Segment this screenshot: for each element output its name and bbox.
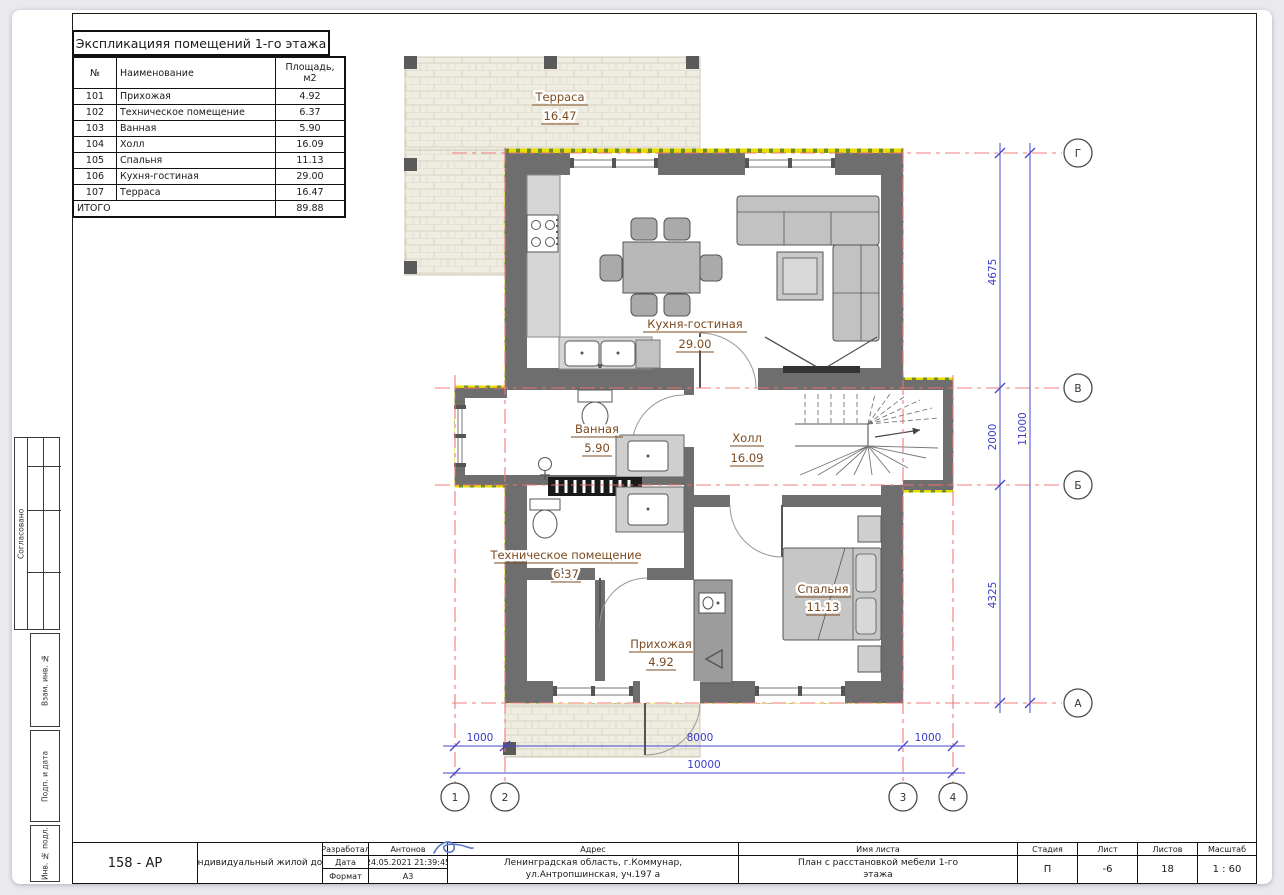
coffee-table: [777, 252, 823, 300]
developed-label: Разработал: [322, 842, 369, 856]
stamp-podp-box: Подп. и дата: [30, 730, 60, 822]
dim-label: 11000: [1017, 412, 1029, 445]
project-name: Индивидуальный жилой дом: [197, 842, 323, 884]
address-value: Ленинградская область, г.Коммунар, ул.Ан…: [447, 855, 739, 884]
sheet-value: -6: [1077, 855, 1138, 884]
total-label: ИТОГО: [73, 201, 276, 218]
room-area: 29.00: [679, 337, 712, 351]
stamp-agreed-box: Согласовано: [14, 437, 60, 630]
dim-label: 4325: [987, 582, 999, 609]
table-row: 103 Ванная 5.90: [73, 121, 345, 137]
room-label: Терраса: [534, 90, 584, 104]
room-area: 4.92: [648, 655, 674, 669]
sheets-label: Листов: [1137, 842, 1198, 856]
room-label: Прихожая: [630, 637, 692, 651]
project-code: 158 - АР: [72, 842, 198, 884]
format-label: Формат: [322, 868, 369, 884]
axis-label: В: [1074, 383, 1081, 395]
schedule-title: Экспликацияя помещений 1-го этажа: [72, 30, 330, 56]
stairs: [795, 394, 939, 475]
dim-label: 8000: [687, 732, 714, 744]
room-area: 6.37: [553, 567, 579, 581]
sheetname-value: План с расстановкой мебели 1-го этажа: [738, 855, 1018, 884]
table-row: 101 Прихожая 4.92: [73, 89, 345, 105]
sheetname-label: Имя листа: [738, 842, 1018, 856]
axis-label: 4: [950, 792, 957, 804]
stamp-agreed-label: Согласовано: [15, 438, 27, 629]
stove-icon: [527, 215, 558, 252]
room-label: Техническое помещение: [489, 548, 641, 562]
axis-label: 1: [452, 792, 459, 804]
dim-label: 1000: [467, 732, 494, 744]
room-area: 5.90: [584, 441, 610, 455]
table-row: 105 Спальня 11.13: [73, 153, 345, 169]
axis-label: 3: [900, 792, 907, 804]
date-label: Дата: [322, 855, 369, 869]
wardrobe: [694, 580, 732, 683]
dim-label: 1000: [915, 732, 942, 744]
scale-value: 1 : 60: [1197, 855, 1257, 884]
room-label: Ванная: [575, 422, 619, 436]
total-area: 89.88: [276, 201, 346, 218]
room-label: Холл: [732, 431, 762, 445]
dim-label: 10000: [687, 759, 720, 771]
address-label: Адрес: [447, 842, 739, 856]
axis-label: 2: [502, 792, 509, 804]
table-row: 102 Техническое помещение 6.37: [73, 105, 345, 121]
stage-label: Стадия: [1017, 842, 1078, 856]
room-area: 16.09: [731, 451, 764, 465]
floor-plan: 1000 8000 1000 10000 4675 2000 4325 1100…: [380, 40, 1110, 820]
dim-label: 2000: [987, 424, 999, 451]
signature-scribble: [430, 838, 476, 858]
room-label: Кухня-гостиная: [647, 317, 742, 331]
table-row: 107 Терраса 16.47: [73, 185, 345, 201]
table-row: 106 Кухня-гостиная 29.00: [73, 169, 345, 185]
col-header-name: Наименование: [117, 57, 276, 89]
stamp-inv-label: Инв. № подл.: [31, 826, 59, 881]
stage-value: П: [1017, 855, 1078, 884]
stamp-vzam-box: Взам. инв. №: [30, 633, 60, 727]
stamp-inv-box: Инв. № подл.: [30, 825, 60, 882]
sheets-value: 18: [1137, 855, 1198, 884]
tv-icon: [765, 337, 877, 373]
col-header-num: №: [73, 57, 117, 89]
axis-label: Г: [1075, 148, 1081, 160]
scale-label: Масштаб: [1197, 842, 1257, 856]
room-area: 11.13: [807, 600, 840, 614]
col-header-area: Площадь, м2: [276, 57, 346, 89]
schedule-header-row: № Наименование Площадь, м2: [73, 57, 345, 89]
page-background: { "schedule": { "title": "Экспликацияя п…: [0, 0, 1284, 895]
stamp-podp-label: Подп. и дата: [31, 731, 59, 821]
axis-label: А: [1074, 698, 1082, 710]
table-row: 104 Холл 16.09: [73, 137, 345, 153]
dim-label: 4675: [987, 259, 999, 286]
room-label: Спальня: [797, 582, 848, 596]
sheet-label: Лист: [1077, 842, 1138, 856]
axis-label: Б: [1074, 480, 1081, 492]
room-area: 16.47: [544, 109, 577, 123]
dining-table: [600, 218, 722, 316]
stamp-vzam-label: Взам. инв. №: [31, 634, 59, 726]
room-schedule-table: № Наименование Площадь, м2 101 Прихожая …: [72, 56, 346, 218]
schedule-total-row: ИТОГО 89.88: [73, 201, 345, 218]
format-value: А3: [368, 868, 448, 884]
